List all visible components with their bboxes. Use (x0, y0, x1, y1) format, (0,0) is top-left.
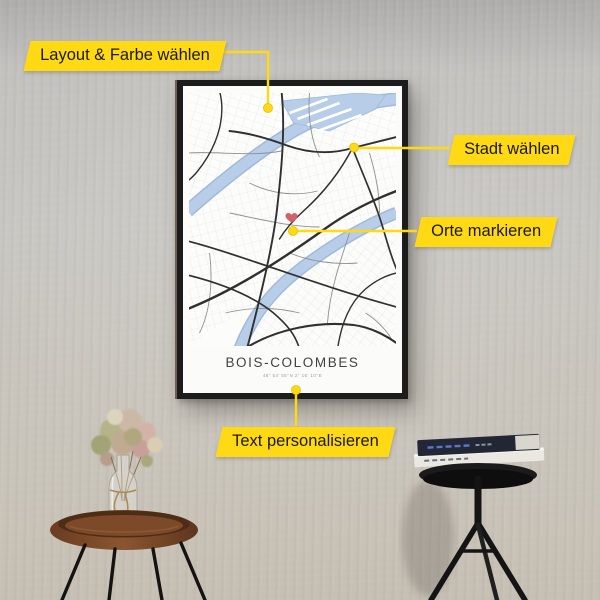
city-map (189, 93, 396, 346)
poster-title: BOIS-COLOMBES (189, 355, 396, 370)
callout-layout-color-label: Layout & Farbe wählen (40, 47, 210, 64)
city-map-print (189, 93, 396, 346)
poster-frame: BOIS-COLOMBES 48° 54' 55''N 2° 16' 10''E (177, 80, 408, 399)
map-poster: BOIS-COLOMBES 48° 54' 55''N 2° 16' 10''E (183, 86, 402, 393)
books-stack (413, 434, 544, 468)
callout-places[interactable]: Orte markieren (415, 217, 558, 247)
callout-personalize-label: Text personalisieren (232, 433, 379, 450)
table-top (50, 510, 198, 550)
side-table (35, 393, 220, 600)
poster-coordinates: 48° 54' 55''N 2° 16' 10''E (189, 373, 396, 378)
callout-places-label: Orte markieren (431, 223, 541, 240)
callout-city[interactable]: Stadt wählen (448, 135, 576, 165)
table-legs (62, 543, 205, 600)
poster-caption: BOIS-COLOMBES 48° 54' 55''N 2° 16' 10''E (189, 346, 396, 393)
callout-city-label: Stadt wählen (464, 141, 559, 158)
product-scene: BOIS-COLOMBES 48° 54' 55''N 2° 16' 10''E (0, 0, 600, 600)
callout-personalize[interactable]: Text personalisieren (216, 427, 396, 457)
stool (398, 423, 563, 600)
callout-layout-color[interactable]: Layout & Farbe wählen (24, 41, 227, 71)
